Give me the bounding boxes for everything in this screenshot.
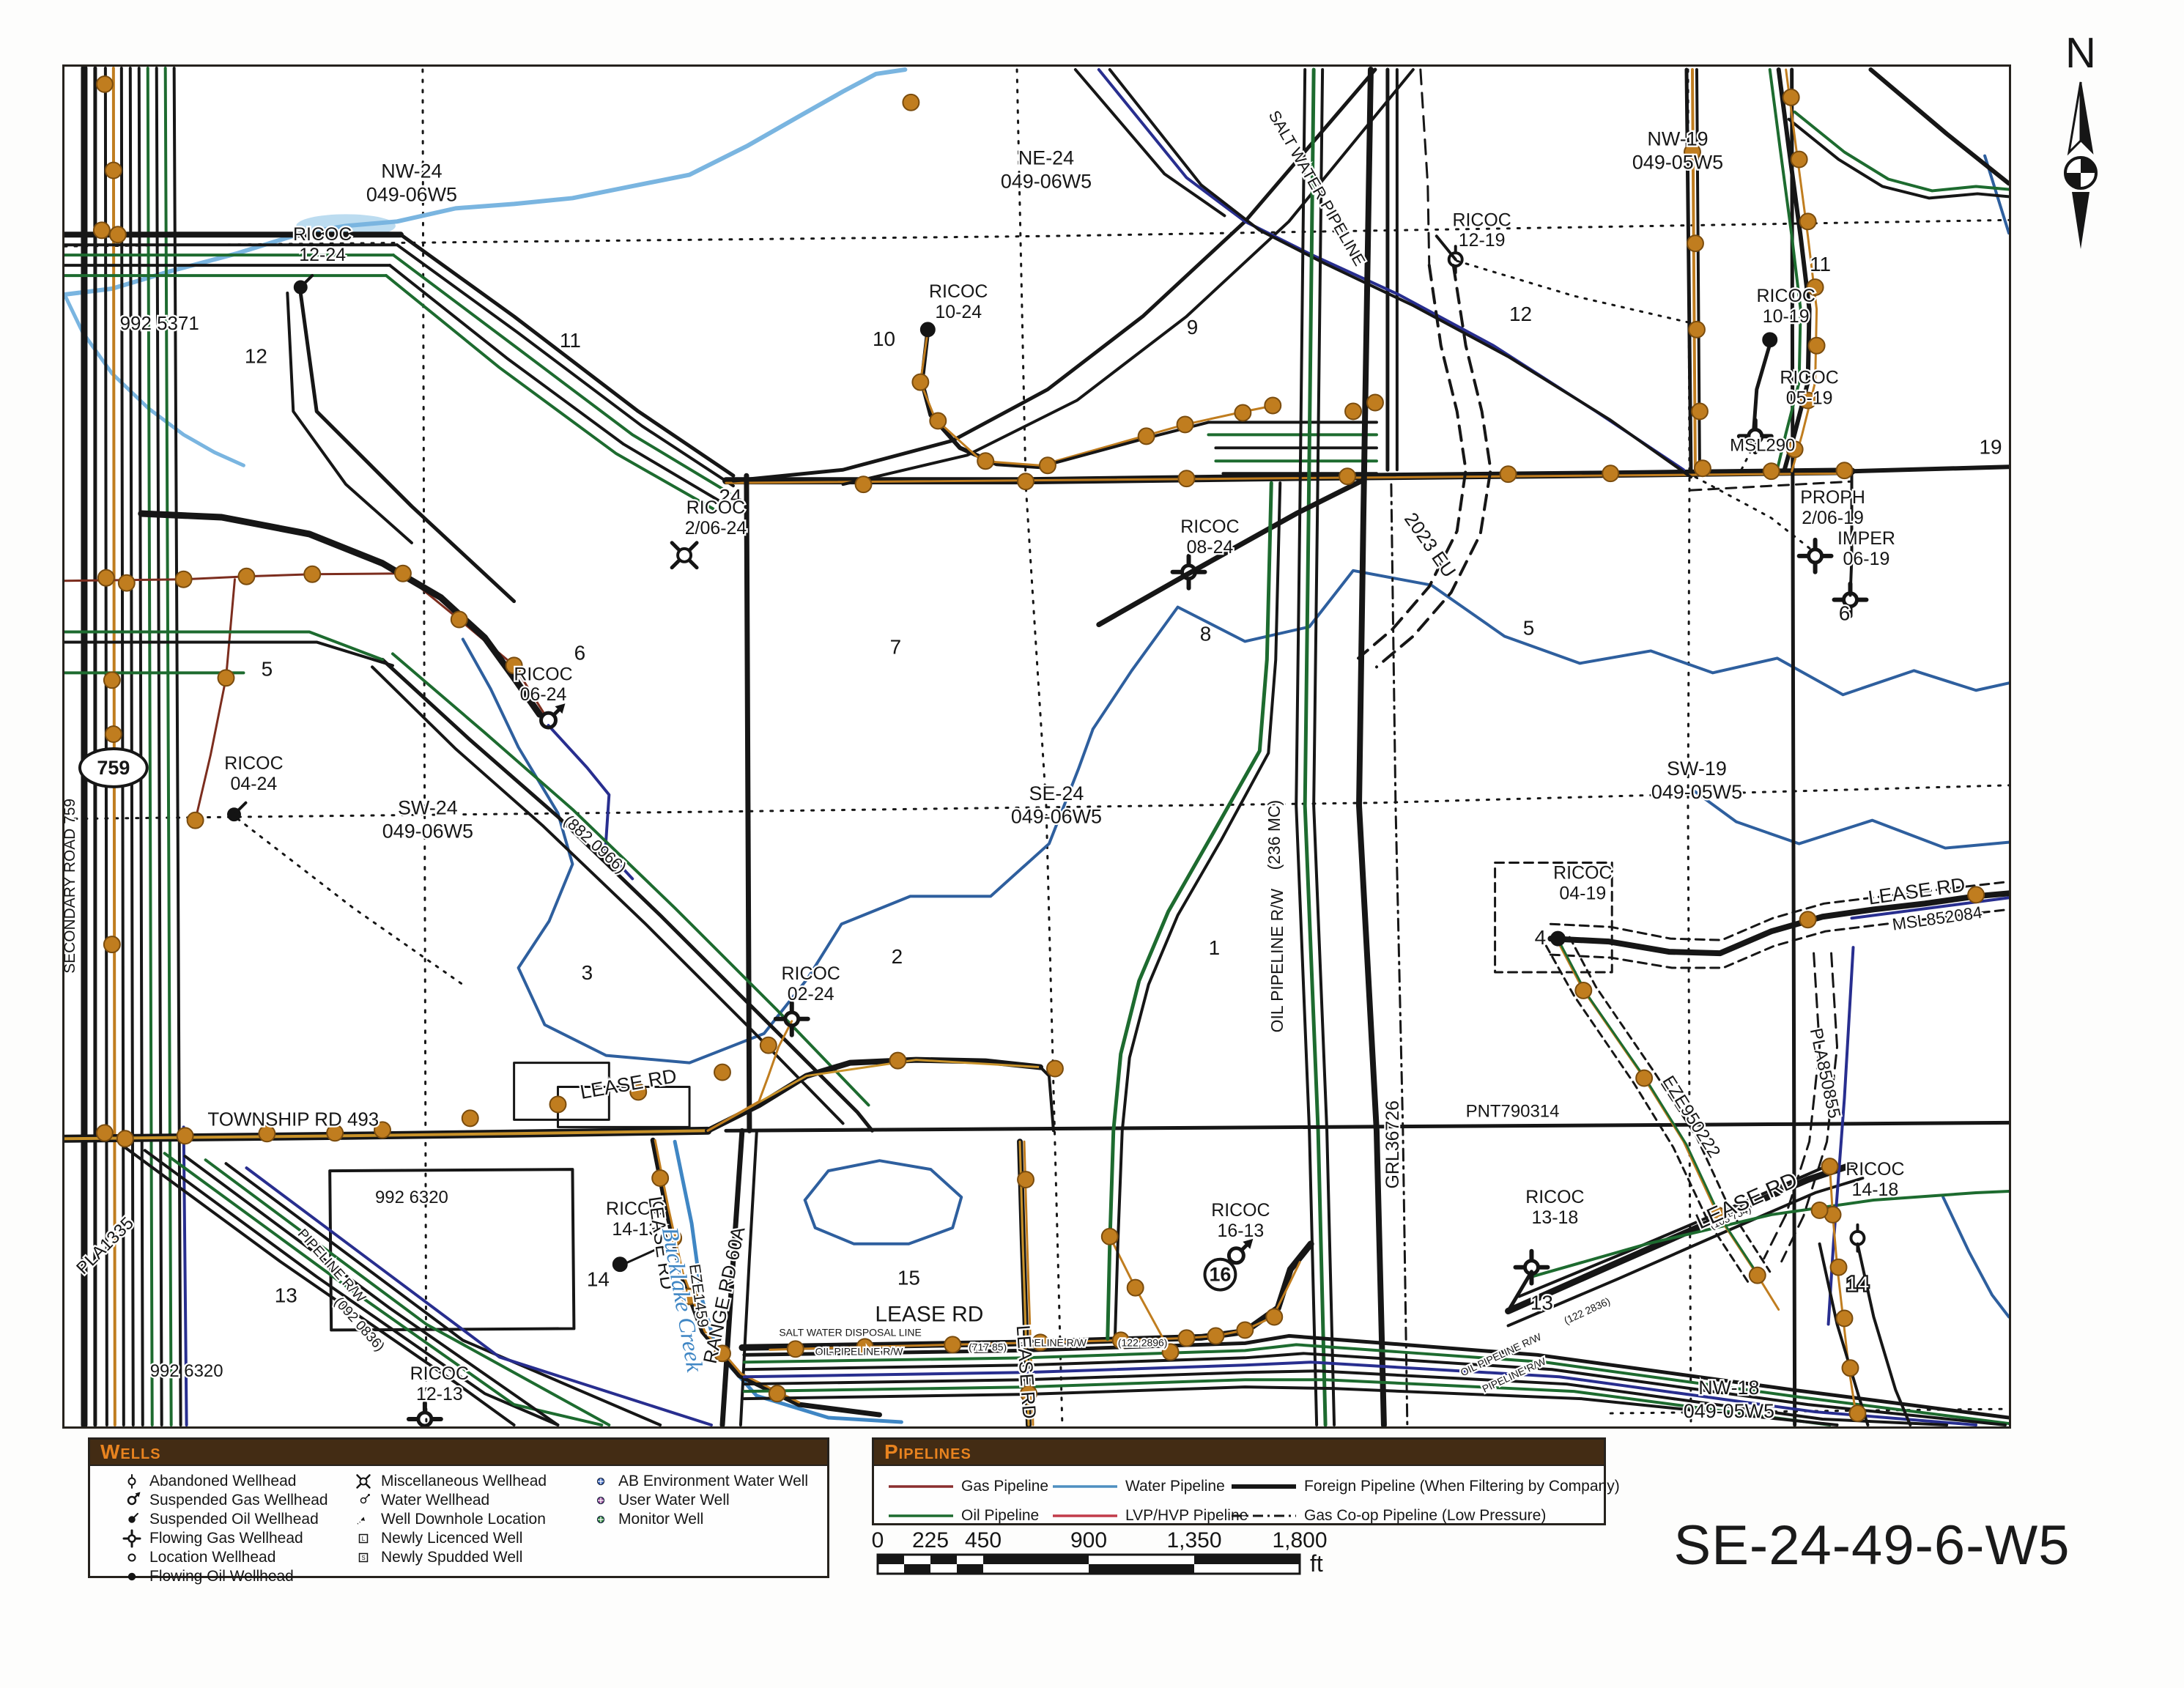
- pipeline-riser-dot: [930, 412, 946, 429]
- scale-bar-cell: [878, 1555, 904, 1564]
- quarter-label: 049-05W5: [1684, 1400, 1774, 1422]
- creek: [1093, 571, 2009, 729]
- legend-item-label: Miscellaneous Wellhead: [381, 1473, 547, 1490]
- well-label: 02-24: [788, 984, 834, 1004]
- pipeline-riser-dot: [1177, 416, 1193, 432]
- well-label: RICOC: [1452, 210, 1511, 230]
- pipeline-riser-dot: [788, 1341, 804, 1357]
- pipeline-riser-dot: [176, 571, 192, 588]
- quarter-label: SE-24: [1029, 782, 1084, 804]
- monitor-icon: [590, 1510, 612, 1529]
- quarter-label: SW-19: [1667, 758, 1727, 780]
- pipeline-riser-dot: [1695, 460, 1711, 476]
- suspended-oil-icon: [121, 1510, 143, 1529]
- oil-pipeline-swatch: [887, 1511, 955, 1520]
- well-label: 06-19: [1843, 549, 1890, 569]
- legend-item-gas: Gas Pipeline: [887, 1472, 1048, 1501]
- well-label: RICOC: [1525, 1187, 1584, 1207]
- legend-item-monitor: Monitor Well: [590, 1510, 808, 1529]
- legend-item-label: Water Wellhead: [381, 1492, 489, 1509]
- scale-tick-label: 0: [872, 1528, 884, 1552]
- pipeline-riser-dot: [652, 1170, 668, 1186]
- well-label: RICOC: [929, 281, 988, 302]
- pipeline-riser-dot: [1018, 1171, 1034, 1188]
- scale-bar-cell: [983, 1555, 1089, 1564]
- section-number: 14: [1846, 1273, 1869, 1295]
- scale-tick-label: 225: [912, 1528, 949, 1552]
- downhole-icon: [352, 1510, 374, 1529]
- legend-item-user-water: User Water Well: [590, 1491, 808, 1510]
- well-label: RICOC: [224, 753, 283, 774]
- plan-label: SALT WATER PIPELINE: [1265, 107, 1369, 269]
- well-label: 2/06-24: [685, 518, 747, 538]
- quarter-label: NW-19: [1647, 128, 1708, 150]
- road: [141, 514, 540, 714]
- well-symbol-miscellaneous: [672, 543, 697, 568]
- scale-bar-cell: [957, 1564, 983, 1574]
- pipeline: [148, 68, 152, 1425]
- pipeline-riser-dot: [106, 163, 122, 179]
- road-label: TOWNSHIP RD 493: [207, 1109, 379, 1130]
- section-number: 14: [587, 1268, 610, 1291]
- stream: [64, 70, 905, 295]
- road: [726, 1122, 2009, 1130]
- road-label: LEASE RD: [1692, 1168, 1802, 1234]
- pipeline-riser-dot: [903, 95, 919, 111]
- water-pipeline-swatch: [1051, 1482, 1119, 1491]
- well-symbol-suspended-gas: [1229, 1239, 1253, 1263]
- well-label: RICOC: [1180, 517, 1239, 537]
- well-label: 2/06-19: [1802, 508, 1864, 528]
- licenced-icon: L: [352, 1529, 374, 1548]
- well-label: RICOC: [782, 963, 840, 984]
- road: [1851, 467, 2009, 471]
- pipeline-riser-dot: [1345, 404, 1361, 420]
- quarter-label: 049-06W5: [382, 821, 473, 843]
- legend-item-label: Monitor Well: [618, 1511, 703, 1528]
- well-label: RICOC: [1846, 1159, 1904, 1180]
- pipeline-riser-dot: [1018, 473, 1034, 489]
- legend-item-label: Foreign Pipeline (When Filtering by Comp…: [1304, 1478, 1620, 1495]
- scale-bar-cell: [904, 1564, 930, 1574]
- page-title: SE-24-49-6-W5: [1652, 1514, 2092, 1577]
- pipelines-legend-column: Foreign Pipeline (When Filtering by Comp…: [1230, 1472, 1620, 1530]
- pipeline-riser-dot: [1822, 1158, 1838, 1174]
- legend-item-foreign: Foreign Pipeline (When Filtering by Comp…: [1230, 1472, 1620, 1501]
- well-label: 06-24: [520, 684, 567, 705]
- legend-item-downhole: Well Downhole Location: [352, 1510, 547, 1529]
- miscellaneous-icon: [352, 1472, 374, 1491]
- pipeline-riser-dot: [1040, 457, 1056, 473]
- legend-item-label: Suspended Gas Wellhead: [149, 1492, 328, 1509]
- well-label: 16-13: [1217, 1221, 1264, 1241]
- legend-item-oil: Oil Pipeline: [887, 1501, 1048, 1530]
- pipeline-riser-dot: [944, 1336, 960, 1352]
- north-arrow-right: [2081, 82, 2092, 152]
- pipeline-riser-dot: [1139, 428, 1155, 444]
- plan-label: OIL PIPELINE R/W: [1267, 888, 1287, 1032]
- water-well-icon: [352, 1491, 374, 1510]
- pipeline-riser-dot: [1791, 152, 1807, 168]
- map-sheet: 7591612111091211192478565612341315141314…: [0, 0, 2184, 1688]
- legend-item-label: AB Environment Water Well: [618, 1473, 808, 1490]
- pipeline: [174, 68, 181, 1425]
- svg-text:S: S: [361, 1555, 365, 1561]
- pipeline-riser-dot: [1843, 1360, 1859, 1376]
- legend-item-label: Flowing Oil Wellhead: [149, 1568, 294, 1585]
- legend-item-water-well: Water Wellhead: [352, 1491, 547, 1510]
- pipeline-riser-dot: [1800, 213, 1816, 229]
- flowing-gas-icon: [121, 1529, 143, 1548]
- legend-item-label: Oil Pipeline: [961, 1507, 1039, 1525]
- legend-item-suspended-gas: Suspended Gas Wellhead: [121, 1491, 328, 1510]
- well-symbol-flowing-gas: [1799, 540, 1832, 572]
- pipeline: [1546, 946, 1747, 1282]
- pipeline-riser-dot: [218, 670, 234, 686]
- well-symbol-flowing-gas: [1516, 1251, 1548, 1284]
- gas-pipeline-swatch: [887, 1482, 955, 1491]
- pipeline-riser-dot: [1047, 1061, 1063, 1077]
- scale-bar-drawing: 02254509001,3501,800ft: [869, 1528, 1382, 1587]
- creek: [675, 1141, 901, 1422]
- scale-bar: 02254509001,3501,800ft: [869, 1528, 1382, 1587]
- well-symbol-suspended-oil: [294, 275, 312, 294]
- pipeline-riser-dot: [1968, 886, 1984, 903]
- well-label: RICOC: [1553, 862, 1612, 883]
- north-hub-quadrant: [2065, 173, 2081, 188]
- section-number: 5: [262, 657, 273, 680]
- legend-item-label: Abandoned Wellhead: [149, 1473, 296, 1490]
- well-label: 13-18: [1532, 1207, 1579, 1228]
- pipeline: [382, 659, 872, 1130]
- pipeline: [397, 245, 733, 486]
- pipeline: [185, 1156, 558, 1425]
- pipeline-riser-dot: [1783, 89, 1799, 105]
- location-icon: [121, 1548, 143, 1567]
- north-hub-quadrant: [2081, 158, 2096, 173]
- legend-item-label: Newly Licenced Well: [381, 1530, 522, 1547]
- creek: [805, 1160, 962, 1244]
- abandoned-icon: [121, 1472, 143, 1491]
- pipeline-riser-dot: [1266, 1309, 1282, 1325]
- legend-item-ab-water: AB Environment Water Well: [590, 1472, 808, 1491]
- pipeline-riser-dot: [1500, 466, 1517, 482]
- section-number: 11: [560, 329, 581, 352]
- section-number: 6: [574, 641, 586, 664]
- pipeline: [1110, 70, 1691, 477]
- legend-item-flowing-gas: Flowing Gas Wellhead: [121, 1529, 328, 1548]
- legend-item-label: Gas Co-op Pipeline (Low Pressure): [1304, 1507, 1546, 1525]
- well-label: RICOC: [410, 1363, 469, 1384]
- pipeline-riser-dot: [1179, 1330, 1195, 1346]
- pipeline: [139, 68, 143, 1425]
- pipeline-riser-dot: [1575, 982, 1591, 999]
- well-label: 08-24: [1187, 537, 1234, 558]
- scale-bar-cell: [983, 1564, 1089, 1574]
- plan-label: GRL36726: [1382, 1100, 1403, 1188]
- road: [1040, 1067, 1054, 1131]
- legend-item-label: Flowing Gas Wellhead: [149, 1530, 303, 1547]
- scale-bar-cell: [930, 1564, 957, 1574]
- pipeline-riser-dot: [550, 1096, 566, 1112]
- pipeline-riser-dot: [769, 1385, 785, 1402]
- well-symbol-flowing-oil: [1763, 333, 1777, 347]
- well-symbol-flowing-gas: [776, 1003, 808, 1035]
- pipeline: [64, 574, 545, 714]
- pipeline-riser-dot: [1837, 462, 1853, 478]
- pipeline: [922, 331, 1040, 467]
- legend-item-lvp: LVP/HVP Pipeline: [1051, 1501, 1248, 1530]
- well-label: RICOC: [686, 497, 745, 518]
- suspended-gas-icon: [121, 1491, 143, 1510]
- legend-item-label: Water Pipeline: [1125, 1478, 1225, 1495]
- lvp-pipeline-swatch: [1051, 1511, 1119, 1520]
- legend-item-spudded: SNewly Spudded Well: [352, 1548, 547, 1567]
- pipeline-riser-dot: [238, 569, 254, 585]
- legend-item-label: Newly Spudded Well: [381, 1549, 522, 1566]
- pipeline-riser-dot: [104, 936, 120, 952]
- section-number: 6: [1839, 602, 1851, 625]
- pipeline-riser-dot: [1687, 235, 1703, 251]
- section-number: 8: [1200, 622, 1212, 645]
- well-label: RICOC: [514, 664, 572, 684]
- well-label: 04-24: [231, 774, 278, 794]
- legend-item-miscellaneous: Miscellaneous Wellhead: [352, 1472, 547, 1491]
- quarter-label: NW-24: [381, 160, 442, 182]
- road: [747, 475, 749, 1130]
- pipeline: [157, 68, 162, 1425]
- scale-bar-cell: [1089, 1555, 1194, 1564]
- legend-item-label: Gas Pipeline: [961, 1478, 1048, 1495]
- pipeline-riser-dot: [1689, 322, 1705, 338]
- legend-item-abandoned: Abandoned Wellhead: [121, 1472, 328, 1491]
- coop-pipeline-swatch: [1230, 1511, 1298, 1520]
- section-number: 4: [1535, 926, 1547, 949]
- wells-legend-column: Abandoned WellheadSuspended Gas Wellhead…: [121, 1472, 328, 1586]
- well-label: 12-19: [1459, 230, 1506, 251]
- scale-tick-label: 1,800: [1272, 1528, 1327, 1552]
- scale-bar-cell: [1089, 1564, 1194, 1574]
- well-label: 14-18: [1852, 1180, 1899, 1200]
- pipeline-riser-dot: [1265, 398, 1281, 414]
- scale-bar-cell: [904, 1555, 930, 1564]
- scale-bar-cell: [878, 1564, 904, 1574]
- pipeline-riser-dot: [856, 476, 872, 492]
- scale-bar-cell: [957, 1555, 983, 1564]
- well-symbol-suspended-oil: [227, 803, 245, 821]
- well-symbol-suspended-gas: [541, 703, 566, 728]
- quarter-label: NW-18: [1698, 1377, 1759, 1399]
- well-label: IMPER: [1837, 528, 1895, 549]
- well-symbol-abandoned: [1851, 1225, 1864, 1251]
- north-arrow-left: [2069, 82, 2081, 152]
- pipeline-riser-dot: [395, 566, 411, 582]
- pipeline-riser-dot: [1234, 405, 1251, 421]
- section-number: 5: [1523, 617, 1535, 640]
- quarter-line: [423, 70, 426, 1425]
- pipeline-riser-dot: [1750, 1267, 1766, 1284]
- well-label: 04-19: [1559, 883, 1606, 903]
- ab-water-icon: [590, 1472, 612, 1491]
- section-number: 3: [582, 961, 593, 984]
- pipeline-riser-dot: [977, 453, 993, 469]
- pipeline: [237, 819, 462, 985]
- pipeline: [106, 68, 107, 1425]
- pipeline: [401, 234, 733, 475]
- unit-boundary: [1421, 70, 1429, 265]
- section-number: 1: [1209, 936, 1221, 959]
- pipelines-legend-column: Water PipelineLVP/HVP Pipeline: [1051, 1472, 1248, 1530]
- pipeline: [1359, 70, 1384, 1425]
- highway-shield-number: 16: [1209, 1264, 1231, 1286]
- plan-label: (236 MC): [1265, 800, 1284, 870]
- legend-item-label: User Water Well: [618, 1492, 730, 1509]
- well-label: PROPH: [1800, 487, 1865, 508]
- quarter-label: 049-06W5: [1001, 170, 1092, 192]
- legend-item-flowing-oil: Flowing Oil Wellhead: [121, 1567, 328, 1586]
- pipeline-riser-dot: [1849, 1405, 1865, 1421]
- pipeline-riser-dot: [451, 612, 467, 628]
- creek: [1943, 1197, 2009, 1317]
- pipeline: [1076, 70, 1225, 215]
- section-number: 12: [245, 345, 267, 368]
- section-number: 2: [892, 945, 903, 968]
- scale-tick-label: 450: [965, 1528, 1002, 1552]
- pipeline: [1754, 344, 1770, 430]
- pipeline-riser-dot: [889, 1053, 906, 1069]
- road: [708, 1060, 1040, 1131]
- quarter-label: NE-24: [1018, 147, 1074, 169]
- legend-item-label: Location Wellhead: [149, 1549, 275, 1566]
- section-number: 19: [1980, 435, 2002, 458]
- pipeline-riser-dot: [760, 1037, 777, 1054]
- well-label: 10-19: [1763, 306, 1810, 327]
- pipeline: [393, 255, 730, 493]
- road-label: LEASE RD: [579, 1065, 678, 1103]
- pipeline: [1314, 70, 1334, 1425]
- pipeline-riser-dot: [714, 1065, 730, 1081]
- pipeline-riser-dot: [188, 812, 204, 829]
- svg-text:L: L: [362, 1536, 366, 1542]
- pipeline-riser-dot: [117, 1130, 133, 1147]
- road: [708, 1060, 1040, 1131]
- north-arrow-tail: [2072, 192, 2089, 249]
- pipeline-riser-dot: [1237, 1322, 1253, 1338]
- pipeline-riser-dot: [94, 222, 110, 238]
- pipeline-riser-dot: [1692, 404, 1708, 420]
- scale-tick-label: 1,350: [1166, 1528, 1221, 1552]
- pipeline-riser-dot: [110, 226, 126, 243]
- scale-bar-cell: [930, 1555, 957, 1564]
- section-number: 11: [1810, 253, 1831, 275]
- north-label: N: [2065, 29, 2096, 77]
- pipeline-riser-dot: [304, 566, 320, 582]
- pipeline: [64, 632, 382, 660]
- road: [1870, 70, 2009, 183]
- road-label: LEASE RD: [875, 1302, 983, 1326]
- pipeline-riser-dot: [1831, 1259, 1847, 1276]
- pipeline: [390, 265, 722, 503]
- legend-item-location: Location Wellhead: [121, 1548, 328, 1567]
- quarter-label: 049-05W5: [1632, 152, 1723, 174]
- user-water-icon: [590, 1491, 612, 1510]
- road: [1792, 70, 1795, 1425]
- pipeline-riser-dot: [1179, 470, 1195, 486]
- pipeline-riser-dot: [1800, 911, 1816, 928]
- well-symbol-flowing-oil: [612, 1257, 627, 1272]
- pipeline: [386, 275, 715, 510]
- legend-item-licenced: LNewly Licenced Well: [352, 1529, 547, 1548]
- wells-legend-column: AB Environment Water WellUser Water Well…: [590, 1472, 808, 1529]
- quarter-label: SW-24: [398, 797, 458, 819]
- spudded-icon: S: [352, 1548, 374, 1567]
- scale-bar-cell: [1194, 1564, 1300, 1574]
- scale-tick-label: 900: [1070, 1528, 1107, 1552]
- legend-item-label: Suspended Oil Wellhead: [149, 1511, 319, 1528]
- pipelines-legend-column: Gas PipelineOil Pipeline: [887, 1472, 1048, 1530]
- highway-shield-number: 759: [97, 757, 130, 779]
- quarter-label: 049-06W5: [1011, 806, 1102, 828]
- parcel: [330, 1169, 574, 1330]
- plan-label: SALT WATER DISPOSAL LINE: [779, 1326, 921, 1338]
- pipeline-riser-dot: [106, 726, 122, 742]
- pipeline-riser-dot: [98, 570, 114, 586]
- plan-label: 992 5371: [120, 314, 199, 334]
- north-arrow: N: [2043, 29, 2123, 256]
- pipeline-riser-dot: [1339, 468, 1355, 484]
- pipeline-riser-dot: [1809, 338, 1825, 354]
- pipeline-riser-dot: [1837, 1311, 1853, 1327]
- pipeline: [1437, 236, 1456, 259]
- wells-legend: Wells Abandoned WellheadSuspended Gas We…: [88, 1437, 829, 1578]
- well-label: 12-24: [299, 245, 346, 265]
- well-label: RICOC: [1211, 1200, 1270, 1221]
- scale-bar-cell: [1194, 1555, 1300, 1564]
- pipeline-riser-dot: [97, 76, 113, 92]
- legend-item-label: Well Downhole Location: [381, 1511, 546, 1528]
- quarter-label: 049-06W5: [366, 183, 457, 205]
- plan-label: PLA850855: [1806, 1026, 1844, 1120]
- map-drawing: 7591612111091211192478565612341315141314…: [64, 67, 2009, 1426]
- pipeline-riser-dot: [462, 1110, 478, 1126]
- foreign-pipeline-swatch: [1230, 1482, 1298, 1491]
- pipelines-legend-header: Pipelines: [874, 1440, 1604, 1466]
- pipeline-riser-dot: [177, 1128, 193, 1144]
- wells-legend-header: Wells: [90, 1440, 827, 1466]
- plan-label: (122 2896): [1118, 1336, 1168, 1348]
- wells-legend-column: Miscellaneous WellheadWater WellheadWell…: [352, 1472, 547, 1567]
- pipeline: [196, 580, 235, 821]
- section-number: 13: [275, 1284, 297, 1307]
- pipeline-riser-dot: [119, 575, 135, 591]
- pipeline: [393, 654, 869, 1105]
- well-label: 12-13: [416, 1384, 463, 1404]
- well-label: 10-24: [935, 302, 982, 322]
- well-label: 05-19: [1786, 388, 1833, 409]
- well-label: RICOC: [293, 224, 352, 245]
- pipeline-riser-dot: [97, 1125, 113, 1141]
- well-label: RICOC: [1757, 286, 1815, 306]
- pipeline-riser-dot: [1763, 463, 1780, 479]
- well-symbol-flowing-oil: [920, 322, 935, 337]
- plan-label: (717 85): [969, 1341, 1007, 1352]
- plan-label: OIL PIPELINE R/W: [815, 1345, 904, 1357]
- pipeline-riser-dot: [1602, 465, 1618, 481]
- road-label: SECONDARY ROAD 759: [64, 799, 78, 974]
- section-number: 13: [1530, 1292, 1553, 1314]
- pipeline-riser-dot: [1128, 1280, 1144, 1296]
- flowing-oil-icon: [121, 1567, 143, 1586]
